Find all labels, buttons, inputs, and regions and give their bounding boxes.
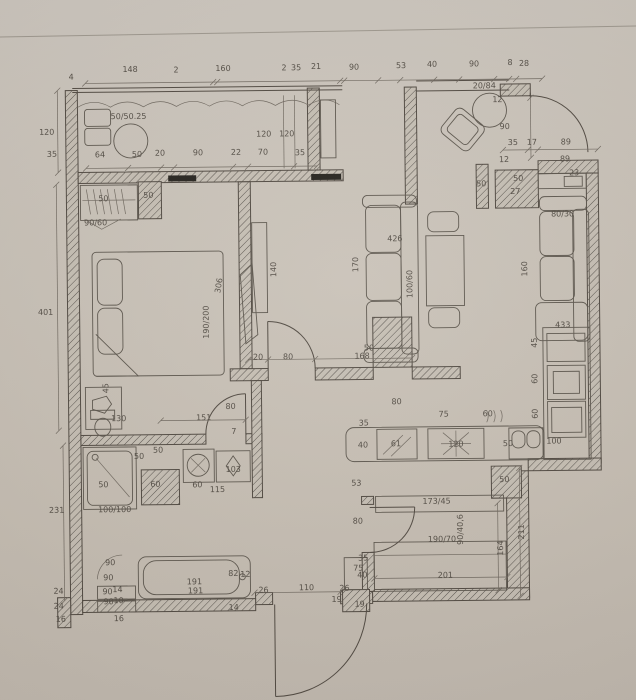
dim-label: 82 xyxy=(228,569,238,578)
dim-label: 12 xyxy=(492,95,502,104)
dim-label: 60 xyxy=(192,480,202,489)
dim-label: 120 xyxy=(279,129,294,138)
dim-label: 35 xyxy=(358,553,368,562)
dim-label: 90 xyxy=(103,573,113,582)
dim-label: 22 xyxy=(231,148,241,157)
dim-label: 90 xyxy=(469,59,479,68)
dim-label: 90/40,6 xyxy=(456,514,465,545)
dim-label: 35 xyxy=(359,418,369,427)
entrance-door-arc xyxy=(275,604,368,697)
dim-label: 14 xyxy=(112,585,122,594)
dim-label: 24 xyxy=(54,602,64,611)
dim-label: 50 xyxy=(98,194,108,203)
dim-label: 19 xyxy=(331,595,341,604)
chair xyxy=(428,212,459,232)
dim-label: 103 xyxy=(226,465,241,474)
dim-label: 100 xyxy=(546,436,561,445)
terrace-armchair xyxy=(439,106,487,154)
dim-label: 90 xyxy=(349,63,359,72)
living-room xyxy=(266,194,465,368)
room-door-arc xyxy=(370,507,415,552)
dim-label: 4 xyxy=(69,73,74,82)
dim-label: 130 xyxy=(111,414,126,423)
dim-label: 8 xyxy=(507,58,512,67)
dim-label: 20 xyxy=(253,353,263,362)
dim-label: 24 xyxy=(53,587,63,596)
dim-label: 27 xyxy=(510,187,520,196)
dim-label: 190/200 xyxy=(202,306,211,339)
dim-label: 80 xyxy=(391,397,401,406)
dim-label: 60 xyxy=(150,480,160,489)
dim-label: 306 xyxy=(213,277,224,294)
dim-label: 35 xyxy=(47,150,57,159)
dim-label: 50 xyxy=(476,179,486,188)
terrace-door-arc xyxy=(530,95,588,153)
dim-label: 50 xyxy=(364,343,374,352)
bath-door-arc xyxy=(205,394,245,434)
dim-label: 10 xyxy=(113,596,123,605)
dim-label: 64 xyxy=(95,150,105,159)
dining-table xyxy=(426,235,465,305)
dim-label: 60 xyxy=(530,374,539,384)
dim-label: 21 xyxy=(311,62,321,71)
dim-label: 35 xyxy=(291,63,301,72)
dim-label: 80/30 xyxy=(551,209,574,218)
dim-label: 401 xyxy=(38,308,53,317)
dim-label: 100/60 xyxy=(405,270,414,298)
pillow xyxy=(98,308,123,354)
dim-label: 50 xyxy=(153,446,163,455)
tv-cabinet xyxy=(252,223,268,313)
dim-label: 173/45 xyxy=(422,497,450,506)
dim-label: 231 xyxy=(49,506,64,515)
dim-label: 90 xyxy=(193,148,203,157)
dim-label: 50/50.25 xyxy=(111,112,147,121)
dim-label: 50 xyxy=(98,480,108,489)
dim-label: 110 xyxy=(299,583,314,592)
dim-label: 151 xyxy=(196,413,211,422)
chair xyxy=(429,308,460,328)
dim-label: 40 xyxy=(427,60,437,69)
dim-label: 26 xyxy=(339,584,349,593)
dim-label: 201 xyxy=(438,571,453,580)
floorplan-drawing: 14821602352190534090828412050/50.2512012… xyxy=(0,0,636,700)
door-arc xyxy=(268,321,315,368)
dim-label: 70 xyxy=(258,148,268,157)
dim-label: 35 xyxy=(295,148,305,157)
dim-label: 50 xyxy=(132,150,142,159)
oven xyxy=(547,365,585,399)
dim-label: 26 xyxy=(258,586,268,595)
balcony-chair xyxy=(85,128,111,145)
dim-label: 16 xyxy=(114,614,124,623)
dim-label: 40 xyxy=(357,570,367,579)
dim-label: 89 xyxy=(560,154,570,163)
sofa2-cushion xyxy=(540,256,574,300)
dim-label: 61 xyxy=(391,439,401,448)
dim-label: 160 xyxy=(215,64,230,73)
balcony xyxy=(72,86,343,171)
dim-label: 90/60 xyxy=(84,218,107,227)
sitting-area xyxy=(534,173,590,342)
dim-label: 50 xyxy=(134,452,144,461)
dim-label: 191 xyxy=(187,577,202,586)
dim-label: 19 xyxy=(355,600,365,609)
dim-label: 80 xyxy=(283,352,293,361)
dim-label: 90 xyxy=(102,587,112,596)
dim-label: 90 xyxy=(105,558,115,567)
dim-label: 2 xyxy=(281,63,286,72)
dim-label: 2 xyxy=(173,65,178,74)
dim-label: 45 xyxy=(530,338,539,348)
dim-label: 148 xyxy=(122,65,137,74)
sofa-cushion xyxy=(366,253,401,300)
dim-label: 75 xyxy=(439,410,449,419)
desk xyxy=(374,541,507,591)
radiator xyxy=(320,100,336,158)
paper-crease xyxy=(0,26,636,37)
floorplan-scan: 14821602352190534090828412050/50.2512012… xyxy=(0,0,636,700)
dim-label: 45 xyxy=(101,383,110,393)
dim-label: 140 xyxy=(269,262,278,277)
dim-label: 50 xyxy=(513,174,523,183)
dim-label: 50 xyxy=(143,191,153,200)
washing-machine xyxy=(183,449,214,482)
dim-label: 7 xyxy=(231,427,236,436)
dim-label: 28 xyxy=(519,59,529,68)
dim-label: 168 xyxy=(354,351,369,360)
dim-label: 50 xyxy=(503,439,513,448)
dim-label: 190/70 xyxy=(428,535,456,544)
dim-label: 90 xyxy=(103,597,113,606)
dim-label: 120 xyxy=(448,439,463,448)
dim-label: 53 xyxy=(351,479,361,488)
dim-label: 50 xyxy=(499,475,509,484)
dim-label: 433 xyxy=(555,320,570,329)
dim-label: 115 xyxy=(210,485,225,494)
dim-label: 60 xyxy=(483,409,493,418)
dim-label: 120 xyxy=(39,128,54,137)
sofa-cushion xyxy=(365,205,400,252)
dishwasher xyxy=(548,401,586,437)
dim-label: 35 xyxy=(508,138,518,147)
dim-label: 12 xyxy=(240,570,250,579)
awning-wave xyxy=(77,100,339,108)
shower xyxy=(83,447,137,510)
balcony-chair xyxy=(84,109,110,126)
dim-label: 80 xyxy=(353,517,363,526)
dim-label: 191 xyxy=(188,586,203,595)
dim-label: 20 xyxy=(155,149,165,158)
dim-label: 16 xyxy=(56,615,66,624)
dim-label: 53 xyxy=(396,61,406,70)
dim-label: 60 xyxy=(531,409,540,419)
balcony-table xyxy=(114,124,148,158)
pillow xyxy=(97,259,122,305)
dim-label: 20/84 xyxy=(473,81,496,90)
dim-label: 14 xyxy=(229,603,239,612)
dim-label: 40 xyxy=(358,440,368,449)
dim-label: 90 xyxy=(500,122,510,131)
dim-label: 164 xyxy=(496,540,505,555)
dim-label: 89 xyxy=(561,137,571,146)
dim-label: 23 xyxy=(569,168,579,177)
dim-label: 211 xyxy=(517,524,526,539)
dim-label: 12 xyxy=(499,155,509,164)
dim-label: 80 xyxy=(225,402,235,411)
dim-label: 120 xyxy=(256,129,271,138)
blanket-fold xyxy=(96,334,138,376)
dim-label: 17 xyxy=(527,138,537,147)
sink xyxy=(509,428,543,459)
dim-label: 100/100 xyxy=(98,505,131,514)
dim-label: 160 xyxy=(520,261,529,276)
dim-label: 170 xyxy=(351,257,360,272)
dim-label: 426 xyxy=(387,234,402,243)
